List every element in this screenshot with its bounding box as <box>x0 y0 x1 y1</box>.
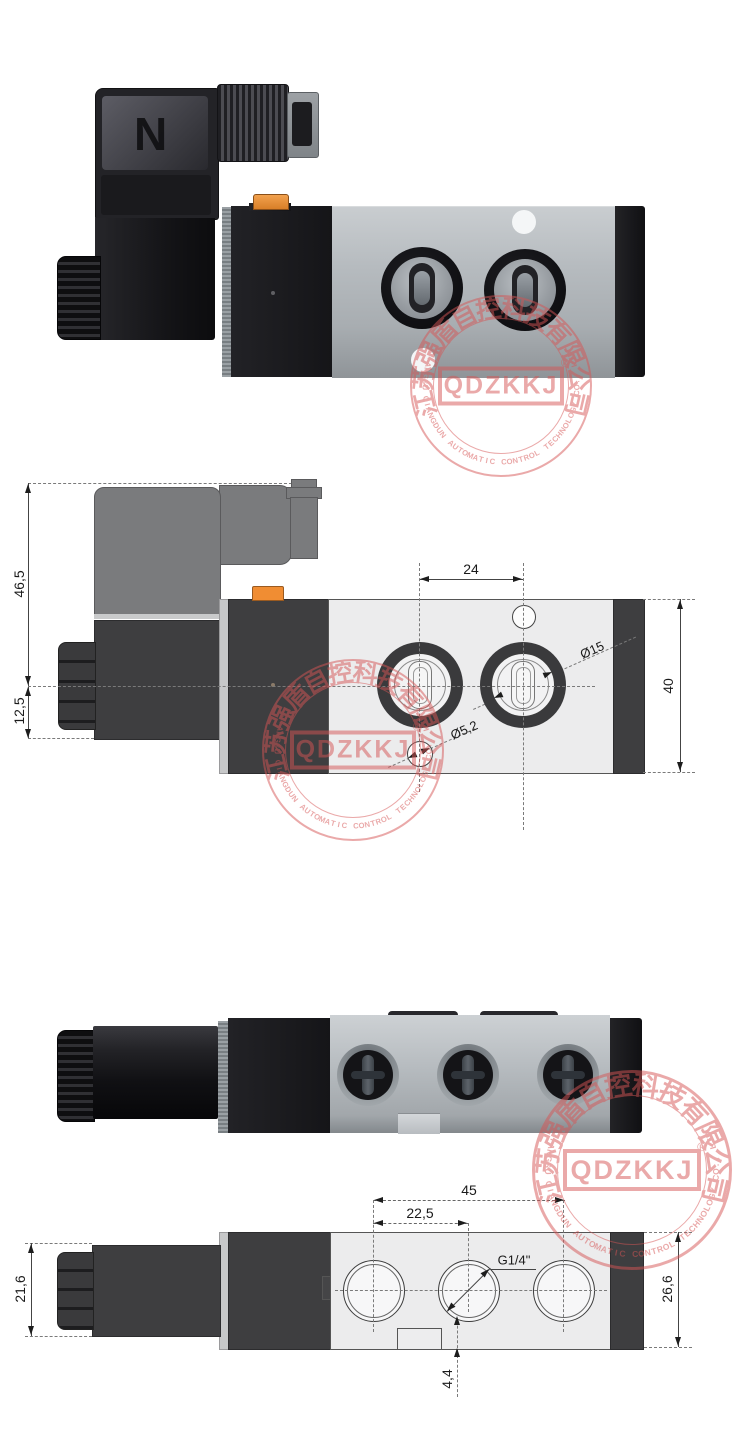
drawing-port-thread <box>394 659 446 711</box>
extension-line <box>25 1243 92 1244</box>
dim-arrow <box>374 1220 383 1226</box>
drawing-orange-indicator <box>252 586 284 601</box>
dim-lower-height: 12,5 <box>11 697 27 724</box>
manual-override-knob <box>57 256 101 340</box>
dim-arrow <box>420 576 429 582</box>
dimension-drawing-side: 46,5 12,5 24 <box>0 460 750 880</box>
manual-override-knob <box>57 1030 95 1122</box>
pin-dot <box>271 291 275 295</box>
dim-arrow <box>25 484 31 493</box>
product-photo-top: N <box>0 0 750 480</box>
dim-line-outer-spacing <box>373 1200 565 1201</box>
mounting-dot-top <box>512 210 536 234</box>
drawing-connector-elbow <box>219 485 292 565</box>
dim-line-spacing <box>419 579 523 580</box>
dim-arrow <box>454 1316 460 1325</box>
valve-body-center <box>332 206 615 378</box>
bottom-port-hole <box>443 1050 493 1100</box>
valve-body-end-cap <box>610 1018 642 1133</box>
bottom-port <box>437 1044 499 1106</box>
cable-gland <box>217 84 289 162</box>
drawing-valve-end <box>613 599 645 774</box>
solenoid-coil <box>95 218 215 340</box>
dim-port-spacing: 24 <box>463 561 479 577</box>
dim-coil-width: 21,6 <box>12 1275 28 1302</box>
port-spool-band <box>551 1071 585 1079</box>
drawing-port <box>438 1260 500 1322</box>
drawing-coil-seam <box>94 614 219 619</box>
drawing-connector-block <box>94 487 221 616</box>
dim-arrow <box>28 1326 34 1335</box>
drawing-valve-end <box>610 1232 644 1350</box>
port-slot <box>409 263 435 313</box>
coil-marking-label: N <box>134 107 167 161</box>
dim-arrow <box>677 600 683 609</box>
dim-outer-spacing: 45 <box>461 1182 477 1198</box>
drawing-coil <box>94 620 221 740</box>
valve-body-left <box>231 206 332 377</box>
dim-thread: G1/4" <box>498 1253 531 1268</box>
valve-port <box>484 249 566 331</box>
dim-arrow <box>25 676 31 685</box>
drawing-valve-left <box>228 1232 332 1350</box>
exhaust-notch <box>398 1113 440 1134</box>
dim-arrow <box>675 1337 681 1346</box>
dim-arrow <box>374 1197 383 1203</box>
dim-arrow <box>513 576 522 582</box>
extension-line <box>25 1336 92 1337</box>
port-spool-band <box>351 1071 385 1079</box>
dim-line-height <box>28 483 29 738</box>
dim-total-height: 46,5 <box>11 570 27 597</box>
drawing-port-slot-inner <box>413 667 428 704</box>
drawing-connector-slot <box>322 1276 331 1300</box>
dim-line-body-height <box>680 599 681 772</box>
product-photo-bottom <box>0 990 750 1150</box>
extension-line <box>28 483 292 484</box>
connector-lower-band <box>101 175 211 215</box>
product-page: N <box>0 0 750 1435</box>
drawing-port <box>377 642 463 728</box>
extension-line <box>643 772 695 773</box>
gland-cap <box>287 92 319 158</box>
extension-line <box>28 738 94 739</box>
port-disc <box>391 257 453 319</box>
port-core <box>517 273 533 307</box>
drawing-port-thread <box>347 1264 401 1318</box>
drawing-port-slot <box>408 661 432 709</box>
dim-arrow <box>25 729 31 738</box>
dim-body-width: 26,6 <box>659 1275 675 1302</box>
dim-body-height: 40 <box>660 678 676 694</box>
center-line <box>419 563 420 792</box>
bottom-port-hole <box>343 1050 393 1100</box>
mounting-dot-bottom <box>411 348 435 372</box>
mounting-face-strip <box>222 207 231 377</box>
valve-port <box>381 247 463 329</box>
drawing-port-bore <box>388 653 452 717</box>
bottom-port <box>337 1044 399 1106</box>
valve-body-left <box>228 1018 330 1133</box>
solenoid-coil <box>93 1026 218 1119</box>
dim-arrow <box>458 1220 467 1226</box>
dim-half-spacing: 22,5 <box>406 1205 433 1221</box>
dimension-drawing-bottom: 45 22,5 G1/4" <box>0 1150 750 1435</box>
port-core <box>414 271 430 305</box>
port-disc <box>494 259 556 321</box>
center-line <box>335 1290 607 1291</box>
dim-line-coil-width <box>31 1243 32 1336</box>
bottom-port <box>537 1044 599 1106</box>
drawing-port <box>343 1260 405 1322</box>
dim-arrow <box>677 762 683 771</box>
dim-line-half-spacing <box>373 1223 468 1224</box>
bottom-port-hole <box>543 1050 593 1100</box>
extension-line <box>643 599 695 600</box>
center-line <box>523 563 524 830</box>
drawing-gland-body <box>290 497 318 559</box>
center-line <box>563 1200 564 1332</box>
dim-arrow <box>555 1197 564 1203</box>
dim-arrow <box>25 687 31 696</box>
drawing-port <box>533 1260 595 1322</box>
dim-arrow <box>675 1233 681 1242</box>
drawing-port-thread <box>537 1264 591 1318</box>
din-connector: N <box>95 88 219 220</box>
drawing-coil <box>92 1245 221 1337</box>
gland-cap-hole <box>292 102 312 146</box>
orange-indicator <box>253 194 289 210</box>
drawing-knob <box>57 1252 94 1330</box>
dim-arrow <box>454 1348 460 1357</box>
port-slot <box>512 265 538 315</box>
dim-arrow <box>28 1244 34 1253</box>
port-spool-band <box>451 1071 485 1079</box>
dim-pilot-offset: 4,4 <box>439 1369 455 1388</box>
center-line <box>468 1223 469 1312</box>
mounting-face-strip <box>218 1021 228 1133</box>
center-line <box>28 686 595 687</box>
drawing-top-hole <box>512 605 536 629</box>
leader-underline <box>490 1269 536 1270</box>
drawing-exhaust-notch <box>397 1328 442 1350</box>
extension-line <box>644 1347 692 1348</box>
dim-line-body-width <box>678 1232 679 1347</box>
extension-line <box>644 1232 692 1233</box>
valve-body-end-cap <box>615 206 645 377</box>
